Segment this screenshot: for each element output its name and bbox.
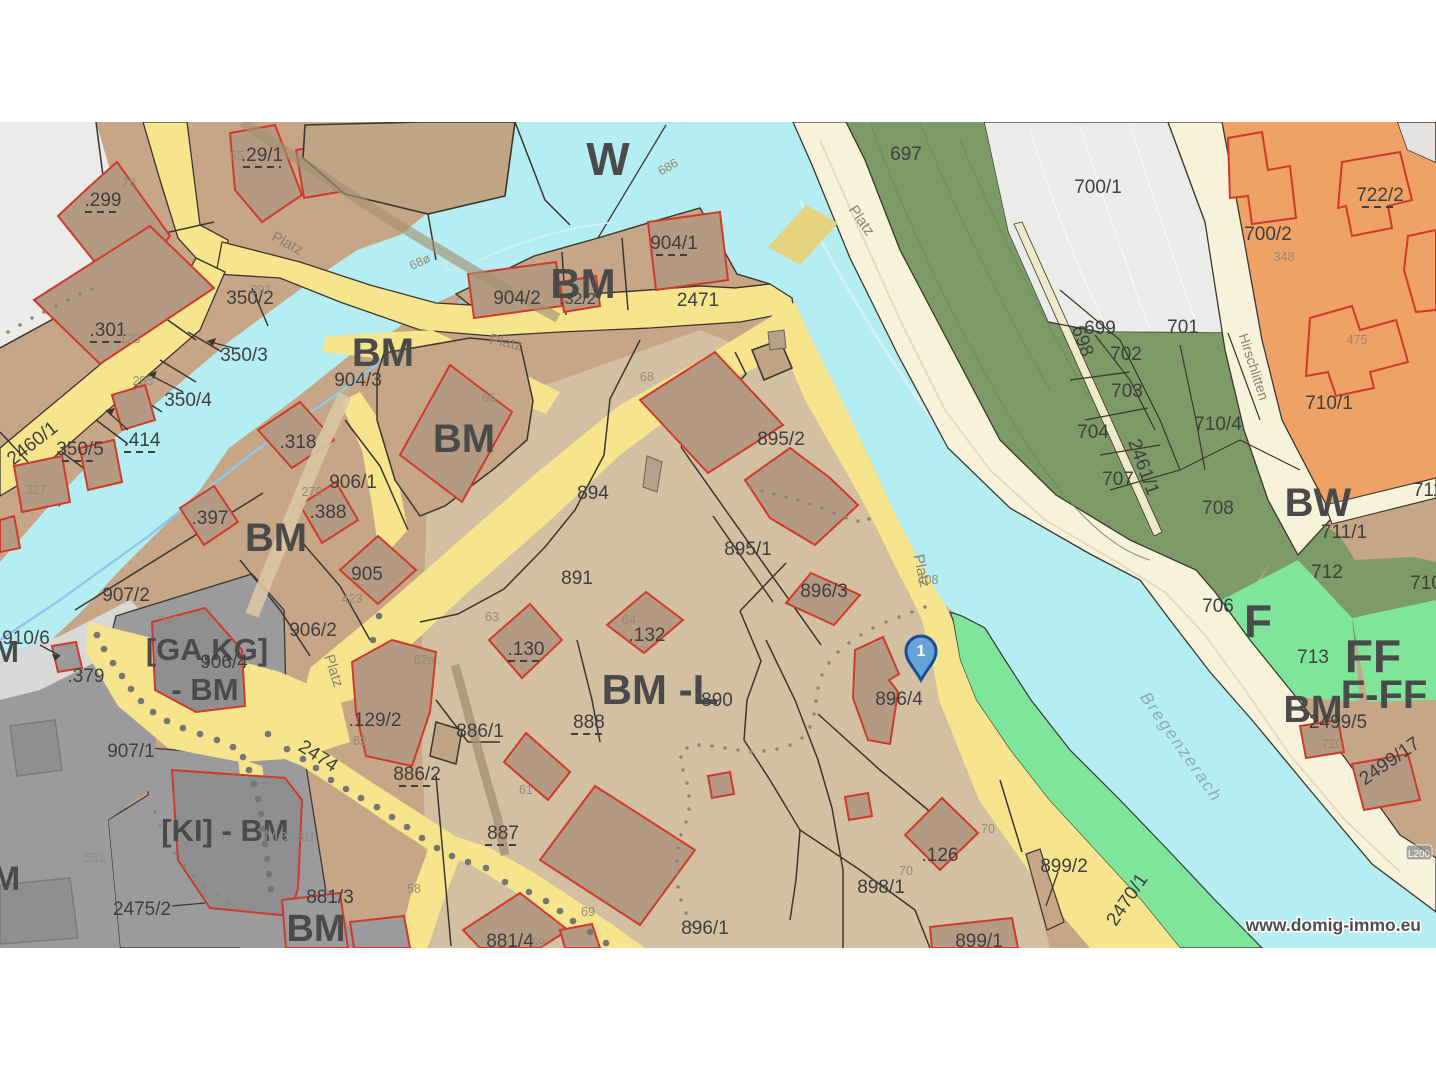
- svg-text:63: 63: [485, 610, 499, 624]
- svg-text:700/2: 700/2: [1244, 224, 1292, 245]
- svg-text:899/1: 899/1: [955, 931, 1003, 948]
- svg-text:.132: .132: [629, 625, 666, 646]
- svg-text:58: 58: [407, 882, 421, 896]
- svg-text:.388: .388: [310, 502, 347, 523]
- svg-text:327: 327: [26, 483, 47, 497]
- svg-text:68: 68: [640, 370, 654, 384]
- svg-text:BM: BM: [245, 516, 307, 560]
- svg-text:292: 292: [158, 614, 179, 628]
- svg-text:65: 65: [230, 149, 244, 163]
- svg-text:.130: .130: [508, 639, 545, 660]
- svg-text:475: 475: [1347, 333, 1368, 347]
- svg-text:895/2: 895/2: [757, 429, 805, 450]
- svg-text:712: 712: [1311, 562, 1343, 583]
- svg-text:907/2: 907/2: [102, 585, 150, 606]
- svg-text:.126: .126: [922, 845, 959, 866]
- svg-text:.414: .414: [124, 430, 161, 451]
- svg-text:906/2: 906/2: [289, 620, 337, 641]
- svg-text:BM: BM: [286, 908, 345, 948]
- svg-text:720: 720: [1322, 737, 1343, 751]
- svg-text:291: 291: [251, 283, 272, 297]
- svg-text:894: 894: [577, 483, 609, 504]
- svg-text:910/6: 910/6: [2, 628, 50, 649]
- svg-text:66: 66: [482, 391, 496, 405]
- svg-text:886/1: 886/1: [456, 721, 504, 742]
- svg-text:710/1: 710/1: [1305, 393, 1353, 414]
- svg-text:707: 707: [1102, 469, 1134, 490]
- svg-text:70: 70: [899, 864, 913, 878]
- svg-text:708: 708: [1202, 498, 1234, 519]
- svg-text:904/3: 904/3: [334, 370, 382, 391]
- svg-text:711/1: 711/1: [1321, 522, 1367, 543]
- svg-text:W: W: [586, 133, 630, 185]
- svg-text:697: 697: [890, 144, 922, 165]
- svg-text:2499/5: 2499/5: [1309, 712, 1367, 733]
- svg-text:408: 408: [918, 573, 939, 587]
- svg-text:L200: L200: [1408, 849, 1431, 860]
- svg-text:710: 710: [1410, 573, 1436, 594]
- svg-text:Mellau: Mellau: [264, 826, 314, 845]
- svg-text:706: 706: [1202, 596, 1234, 617]
- svg-text:703: 703: [1111, 381, 1143, 402]
- svg-text:904/2: 904/2: [493, 288, 541, 309]
- svg-text:898/1: 898/1: [857, 877, 905, 898]
- svg-text:896/4: 896/4: [875, 689, 923, 710]
- svg-text:78: 78: [122, 176, 136, 190]
- svg-text:886/2: 886/2: [393, 764, 441, 785]
- svg-text:F-FF: F-FF: [1341, 673, 1428, 717]
- svg-text:423: 423: [342, 592, 363, 606]
- svg-text:64: 64: [622, 613, 636, 627]
- svg-text:907/1: 907/1: [107, 741, 155, 762]
- svg-text:896/1: 896/1: [681, 918, 729, 939]
- svg-text:350/4: 350/4: [164, 390, 212, 411]
- svg-text:700/1: 700/1: [1074, 177, 1122, 198]
- svg-text:881/4: 881/4: [486, 931, 534, 948]
- svg-text:906/1: 906/1: [329, 472, 377, 493]
- svg-text:1: 1: [917, 643, 926, 660]
- svg-text:.29/1: .29/1: [241, 145, 283, 166]
- svg-text:702: 702: [1110, 344, 1142, 365]
- svg-text:881/3: 881/3: [306, 887, 354, 908]
- svg-text:710/4: 710/4: [1194, 414, 1242, 435]
- svg-text:www.domig-immo.eu: www.domig-immo.eu: [1245, 915, 1421, 935]
- svg-text:713: 713: [1297, 647, 1329, 668]
- svg-text:F: F: [1244, 595, 1272, 647]
- svg-text:711: 711: [1413, 480, 1436, 501]
- svg-text:904/1: 904/1: [650, 233, 698, 254]
- svg-text:551: 551: [85, 851, 106, 865]
- svg-text:62: 62: [353, 734, 367, 748]
- svg-text:348: 348: [1274, 250, 1295, 264]
- svg-text:M: M: [0, 860, 20, 898]
- svg-text:.397: .397: [192, 508, 229, 529]
- svg-text:62a: 62a: [414, 653, 435, 667]
- svg-text:895/1: 895/1: [724, 539, 772, 560]
- svg-text:722/2: 722/2: [1356, 185, 1404, 206]
- svg-text:.318: .318: [280, 432, 317, 453]
- svg-text:891: 891: [561, 568, 593, 589]
- svg-text:701: 701: [1167, 317, 1199, 338]
- svg-text:2475/2: 2475/2: [113, 899, 171, 920]
- svg-text:BM: BM: [433, 417, 495, 461]
- svg-text:123: 123: [120, 332, 141, 346]
- svg-text:905: 905: [351, 564, 383, 585]
- svg-text:.32/2: .32/2: [560, 291, 596, 308]
- svg-text:BW: BW: [1285, 481, 1352, 525]
- svg-text:70: 70: [981, 822, 995, 836]
- svg-text:704: 704: [1077, 422, 1109, 443]
- svg-text:270: 270: [302, 485, 323, 499]
- svg-text:295: 295: [133, 374, 154, 388]
- svg-text:350/5: 350/5: [56, 439, 104, 460]
- svg-text:69: 69: [581, 905, 595, 919]
- svg-text:899/2: 899/2: [1040, 856, 1088, 877]
- svg-text:890: 890: [701, 690, 733, 711]
- svg-text:- BM: - BM: [171, 672, 238, 707]
- svg-text:.379: .379: [68, 666, 105, 687]
- svg-text:887: 887: [487, 823, 519, 844]
- svg-text:888: 888: [573, 712, 605, 733]
- svg-text:.129/2: .129/2: [349, 710, 402, 731]
- svg-text:896/3: 896/3: [800, 581, 848, 602]
- svg-text:.299: .299: [85, 190, 122, 211]
- svg-text:350/3: 350/3: [220, 345, 268, 366]
- svg-text:2471: 2471: [677, 290, 719, 311]
- svg-text:906/4: 906/4: [200, 652, 248, 673]
- svg-text:59: 59: [531, 936, 545, 948]
- svg-text:61: 61: [519, 783, 533, 797]
- svg-text:BM: BM: [352, 331, 414, 375]
